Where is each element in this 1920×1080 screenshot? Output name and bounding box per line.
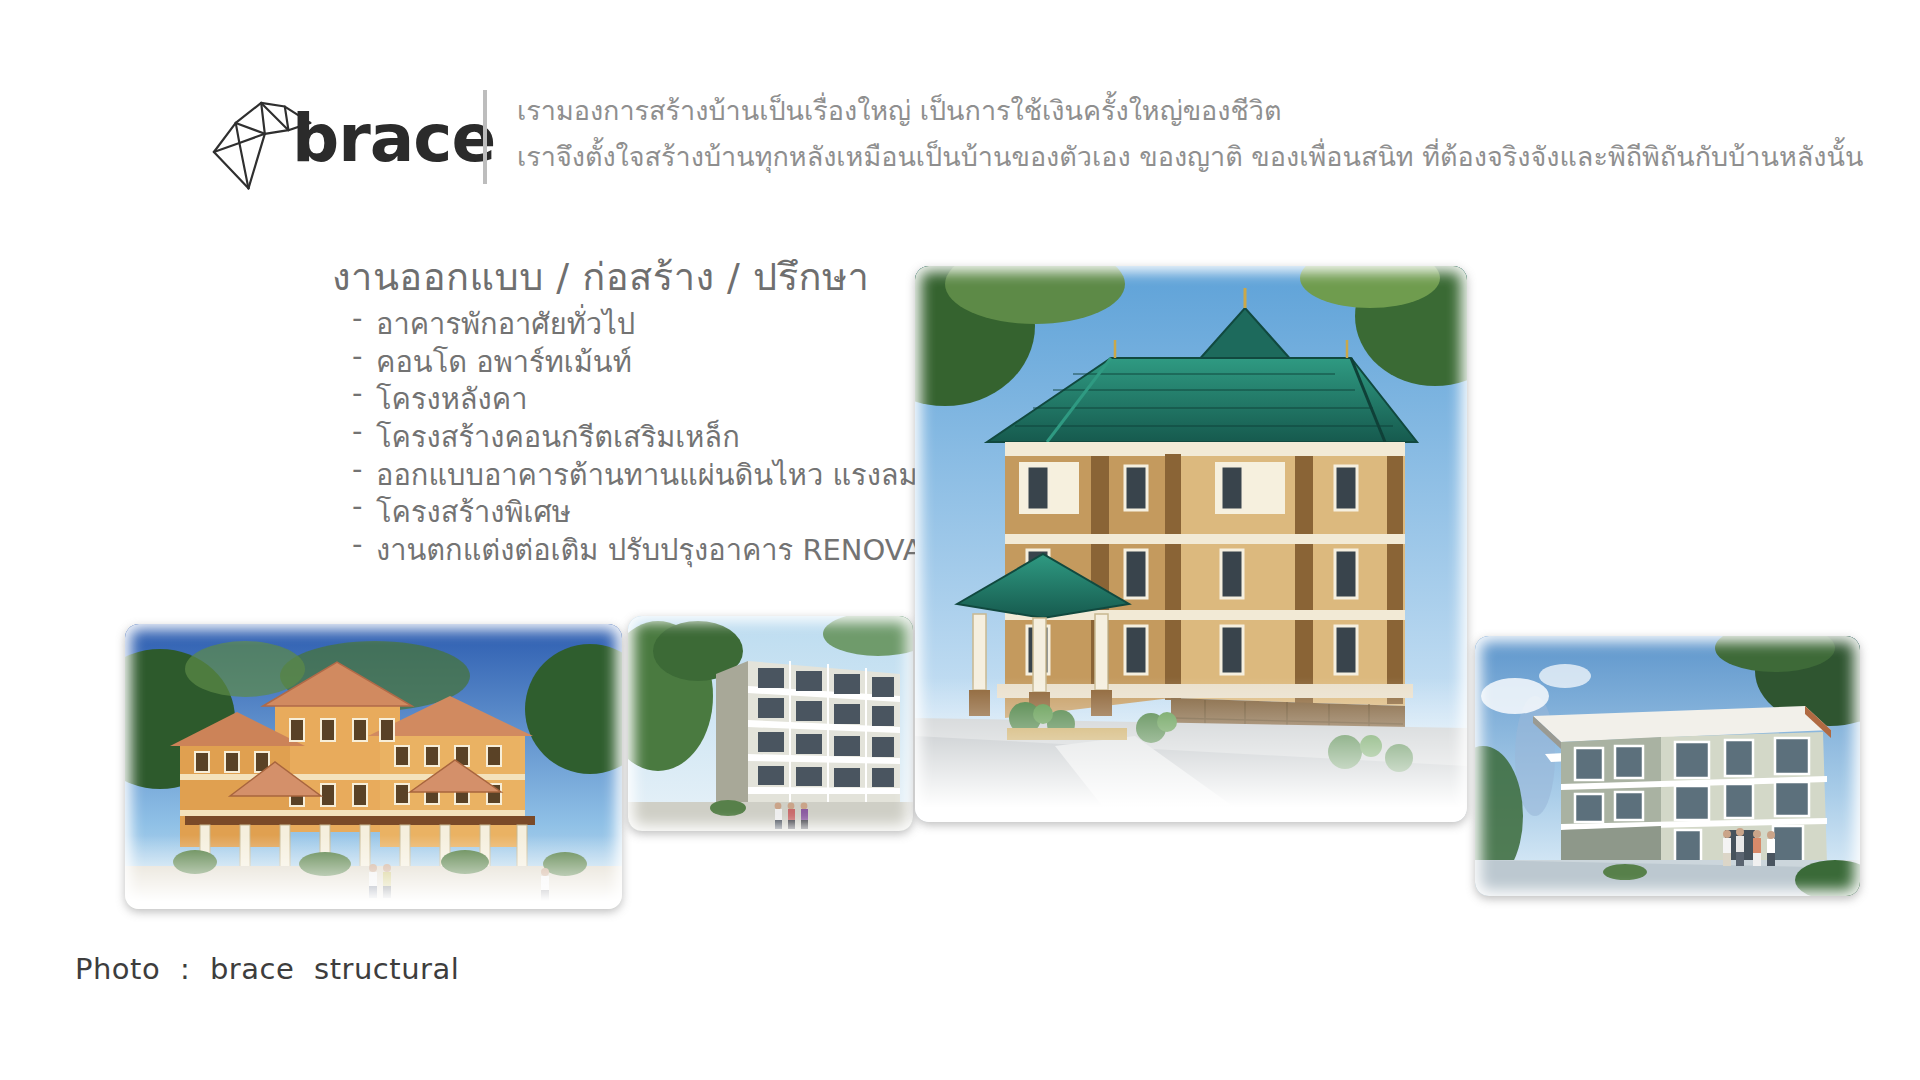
- bullet-dash: -: [352, 414, 376, 448]
- brand-logo-text: brace: [292, 104, 495, 174]
- header-divider: [483, 90, 487, 184]
- brand-tagline: เรามองการสร้างบ้านเป็นเรื่องใหญ่ เป็นการ…: [517, 88, 1717, 180]
- tagline-line-1: เรามองการสร้างบ้านเป็นเรื่องใหญ่ เป็นการ…: [517, 88, 1717, 134]
- photo-teal-roof-building: [915, 266, 1467, 822]
- bullet-dash: -: [352, 339, 376, 373]
- photo-grey-condo: [628, 616, 913, 831]
- bullet-dash: -: [352, 301, 376, 335]
- services-list-item: -โครงหลังคา: [352, 376, 956, 414]
- bullet-dash: -: [352, 489, 376, 523]
- services-heading: งานออกแบบ / ก่อสร้าง / ปรึกษา: [332, 246, 869, 307]
- bullet-dash: -: [352, 527, 376, 561]
- main-building-rendering-image: [915, 266, 1467, 822]
- condo-rendering-image: [628, 616, 913, 831]
- services-list-item: -อาคารพักอาศัยทั่วไป: [352, 301, 956, 339]
- photo-credit: Photo : brace structural: [75, 952, 459, 986]
- services-list-item: -คอนโด อพาร์ทเม้นท์: [352, 339, 956, 377]
- tagline-line-2: เราจึงตั้งใจสร้างบ้านทุกหลังเหมือนเป็นบ้…: [517, 134, 1717, 180]
- photo-resort-apartment: [125, 624, 622, 909]
- services-item-label: งานตกแต่งต่อเติม ปรับปรุงอาคาร RENOVATE: [376, 527, 956, 573]
- services-list: -อาคารพักอาศัยทั่วไป -คอนโด อพาร์ทเม้นท์…: [352, 301, 956, 565]
- house-rendering-image: [1475, 636, 1860, 896]
- services-list-item: -ออกแบบอาคารต้านทานแผ่นดินไหว แรงลม: [352, 452, 956, 490]
- page: brace เรามองการสร้างบ้านเป็นเรื่องใหญ่ เ…: [0, 0, 1920, 1080]
- services-list-item: -โครงสร้างคอนกรีตเสริมเหล็ก: [352, 414, 956, 452]
- bullet-dash: -: [352, 452, 376, 486]
- resort-rendering-image: [125, 624, 622, 909]
- bullet-dash: -: [352, 376, 376, 410]
- photo-modern-house: [1475, 636, 1860, 896]
- services-list-item: -งานตกแต่งต่อเติม ปรับปรุงอาคาร RENOVATE: [352, 527, 956, 565]
